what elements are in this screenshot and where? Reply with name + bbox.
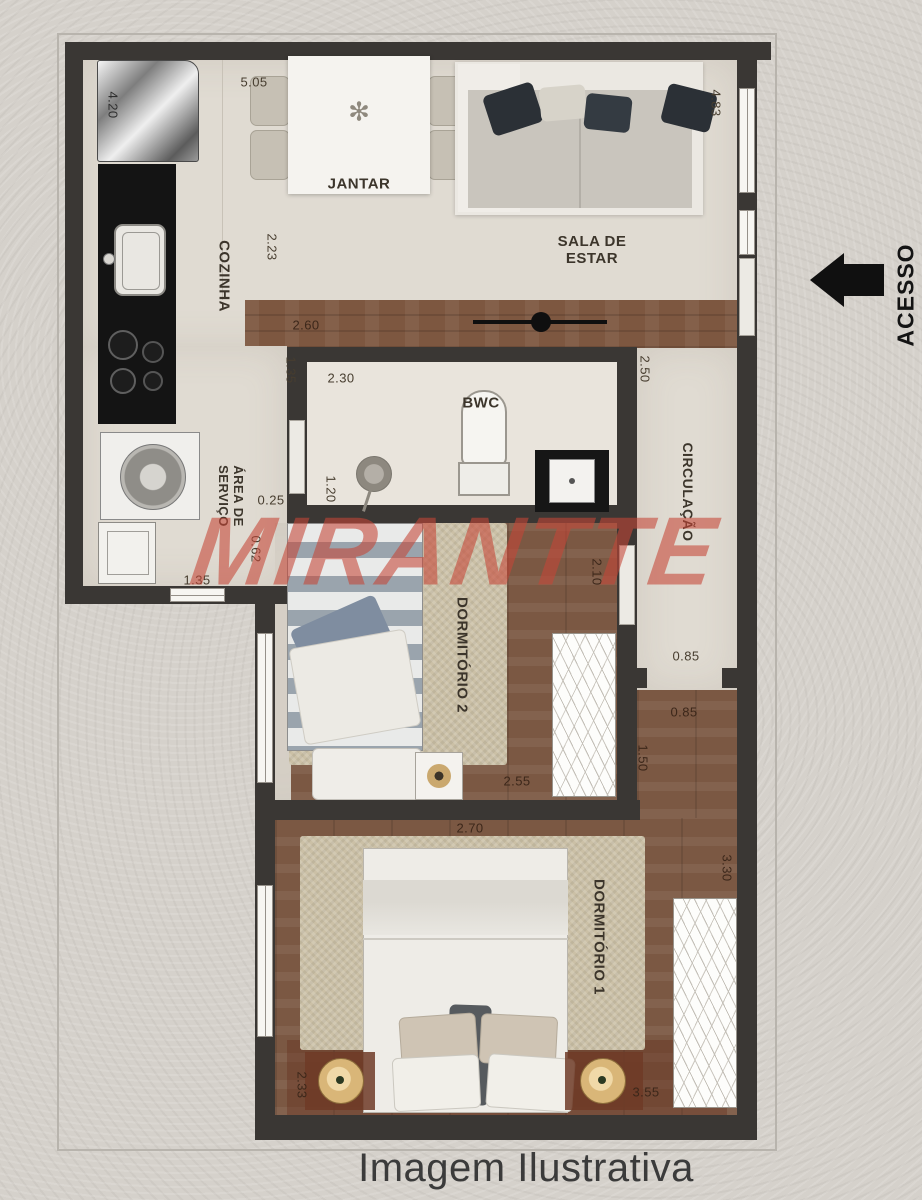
wall-dorm-divider <box>255 800 640 820</box>
kitchen-sink-basin <box>122 232 160 290</box>
bwc-basin-drain <box>569 478 575 484</box>
dorm2-duvet <box>288 628 421 745</box>
label-dormitorio1: DORMITÓRIO 1 <box>590 879 607 995</box>
dim-circ-lower: 0.85 <box>671 706 698 719</box>
window-mullion <box>747 211 748 254</box>
dorm1-wardrobe <box>673 898 737 1108</box>
dorm1-pillow-white-2 <box>485 1053 576 1113</box>
window-mullion <box>265 634 266 782</box>
shower-head <box>356 456 392 492</box>
cooktop-burner-4 <box>143 371 163 391</box>
dorm2-lamp <box>427 764 451 788</box>
toilet-tank <box>458 462 510 496</box>
window-dorm1 <box>257 885 273 1037</box>
dim-bwc-right-height: 2.50 <box>639 356 652 383</box>
cooktop-burner-3 <box>110 368 136 394</box>
entry-door-gap <box>739 258 755 336</box>
window-mullion <box>747 89 748 192</box>
sofa-pillow-dark-2 <box>583 93 633 134</box>
dim-dining-depth: 2.23 <box>266 234 279 261</box>
hall-door-pivot <box>531 312 551 332</box>
dim-top-width: 5.05 <box>241 76 268 89</box>
label-sala-de-estar: SALA DE ESTAR <box>558 233 627 268</box>
floorplan-canvas: ✻ COZINHA JANTAR SALA DE ESTAR <box>0 0 922 1200</box>
dorm1-pillow-white-1 <box>392 1054 482 1112</box>
dim-dorm1-right-height: 3.30 <box>721 855 734 882</box>
window-living-2 <box>739 210 755 255</box>
dim-dorm2-bottom-width: 2.55 <box>504 775 531 788</box>
wall-circ-door-stub-left <box>617 668 647 688</box>
dorm2-bench <box>312 748 422 800</box>
window-mullion <box>265 886 266 1036</box>
label-dormitorio2: DORMITÓRIO 2 <box>453 597 470 713</box>
dim-circ-entry: 1.50 <box>637 745 650 772</box>
dorm2-wardrobe <box>552 633 616 797</box>
sofa-pillow-light <box>539 84 588 122</box>
wall-bwc-top <box>287 347 637 362</box>
caption: Imagem Ilustrativa <box>358 1148 694 1188</box>
dorm1-side-table-left-dot <box>336 1076 344 1084</box>
dim-dorm1-bottom-width: 3.55 <box>633 1086 660 1099</box>
washing-machine-drum <box>120 444 186 510</box>
access-arrow-icon <box>810 253 844 307</box>
dim-dorm1-top-width: 2.70 <box>457 822 484 835</box>
label-sala-line2: ESTAR <box>558 250 627 267</box>
wall-left-upper <box>65 42 83 604</box>
label-sala-line1: SALA DE <box>558 233 627 250</box>
label-jantar: JANTAR <box>328 175 391 192</box>
access-arrow-stem <box>842 264 884 296</box>
dorm1-duvet-fold <box>363 880 568 935</box>
label-cozinha: COZINHA <box>215 240 232 312</box>
access-label: ACESSO <box>895 243 918 346</box>
window-living-1 <box>739 88 755 193</box>
dim-living-height: 4.83 <box>710 90 723 117</box>
wall-circ-door-stub-right <box>722 668 737 688</box>
dining-chair-2 <box>250 130 290 180</box>
cooktop-burner-2 <box>142 341 164 363</box>
dim-kitchen-left-height: 4.20 <box>107 92 120 119</box>
wall-dorm1-bottom <box>255 1115 757 1140</box>
dorm1-side-table-right-dot <box>598 1076 606 1084</box>
dim-bwc-width: 2.30 <box>328 372 355 385</box>
dim-dorm1-left-height: 2.33 <box>296 1072 309 1099</box>
wall-right <box>737 42 757 1140</box>
window-dorm2 <box>257 633 273 783</box>
cooktop-burner-1 <box>108 330 138 360</box>
watermark: MIRANTTE <box>186 503 725 600</box>
dim-circ-upper: 0.85 <box>673 650 700 663</box>
dim-bwc-entry-side: 1.35 <box>285 357 298 384</box>
kitchen-faucet-icon <box>103 253 115 265</box>
dorm1-duvet-line <box>363 938 568 940</box>
laundry-tub-basin <box>107 531 149 575</box>
door-gap-bwc <box>289 420 305 494</box>
table-centerpiece-icon: ✻ <box>348 97 370 128</box>
label-bwc: BWC <box>462 394 499 411</box>
dim-hall-width: 2.60 <box>293 319 320 332</box>
